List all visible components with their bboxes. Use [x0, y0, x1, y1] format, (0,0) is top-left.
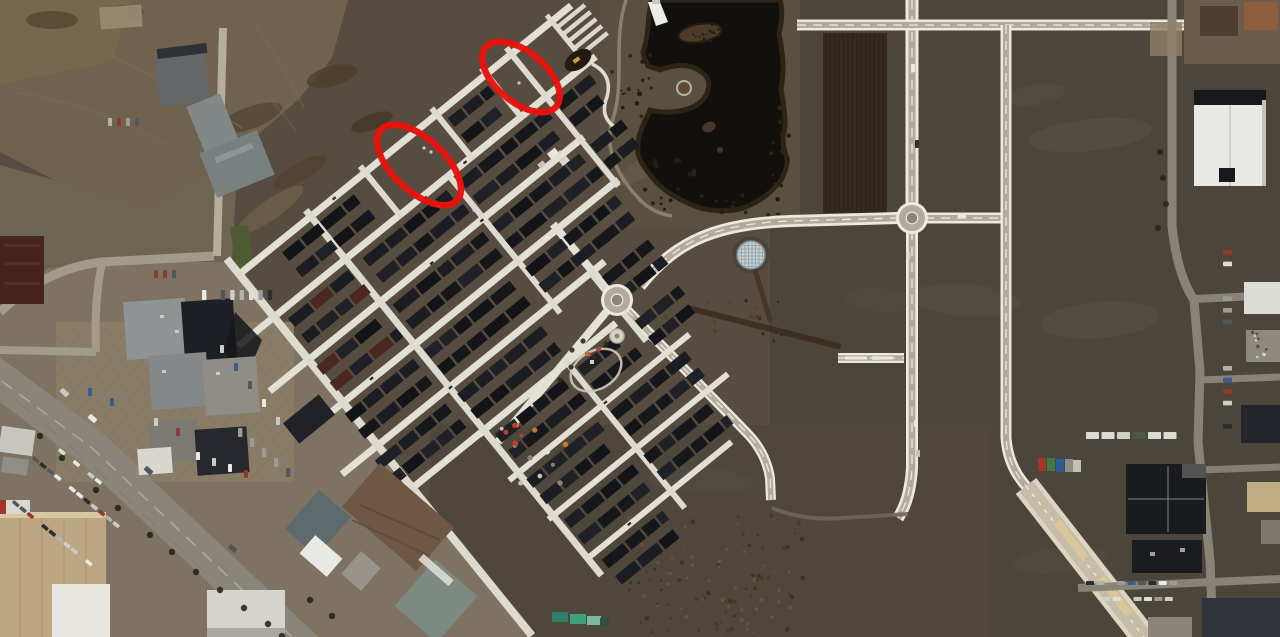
construction-trailer — [587, 616, 601, 625]
car — [914, 420, 918, 427]
8 — [1154, 597, 1162, 601]
building — [1202, 598, 1280, 637]
5 — [220, 345, 224, 353]
4 — [212, 458, 216, 466]
16 — [1223, 424, 1232, 429]
black-roof-building — [1132, 540, 1202, 573]
4 — [244, 470, 248, 478]
6 — [110, 398, 114, 406]
8 — [240, 290, 244, 300]
roundabout-central — [611, 294, 623, 306]
building — [0, 426, 36, 456]
playground — [596, 347, 601, 351]
4 — [228, 464, 232, 472]
construction-trailer — [552, 612, 568, 622]
satellite-image-canvas — [0, 0, 1280, 637]
8 — [1113, 597, 1121, 601]
16 — [1223, 308, 1232, 313]
5 — [234, 363, 238, 371]
6 — [154, 418, 158, 426]
8 — [1102, 597, 1110, 601]
6 — [1133, 432, 1146, 439]
roundabout-east — [906, 212, 918, 224]
car — [911, 64, 915, 72]
16 — [1223, 401, 1232, 406]
3 — [172, 270, 176, 278]
5 — [262, 448, 266, 457]
car — [915, 140, 919, 148]
9 — [1159, 581, 1167, 585]
building — [1246, 330, 1280, 362]
6 — [1164, 432, 1177, 439]
9 — [1148, 581, 1156, 585]
pond-lookout — [677, 81, 691, 95]
16 — [1223, 366, 1232, 371]
6 — [176, 428, 180, 436]
9 — [1086, 581, 1094, 585]
building — [1241, 405, 1280, 443]
dirt-mound — [26, 11, 78, 29]
car — [872, 356, 879, 360]
8 — [202, 290, 206, 300]
hotel-complex — [123, 298, 189, 360]
6 — [1102, 432, 1115, 439]
car — [958, 214, 966, 218]
16 — [1223, 262, 1232, 267]
8 — [1134, 597, 1142, 601]
5 — [276, 417, 280, 425]
5 — [248, 381, 252, 389]
4 — [126, 118, 130, 126]
9 — [1117, 581, 1125, 585]
8 — [1165, 597, 1173, 601]
aerial-map-view — [0, 0, 1280, 637]
car — [916, 450, 920, 457]
8 — [258, 290, 262, 300]
pond-island — [717, 147, 723, 153]
9 — [1128, 581, 1136, 585]
building — [1247, 482, 1280, 512]
6 — [1086, 432, 1099, 439]
3 — [154, 270, 158, 278]
6 — [88, 388, 92, 396]
6 — [1148, 432, 1161, 439]
16 — [1223, 296, 1232, 301]
4 — [117, 118, 121, 126]
shipping-container — [1047, 458, 1055, 471]
shipping-container — [1038, 458, 1046, 471]
plowed-field — [823, 33, 887, 213]
playground — [585, 352, 590, 356]
9 — [1138, 581, 1146, 585]
building — [1244, 282, 1280, 314]
5 — [262, 399, 266, 407]
4 — [108, 118, 112, 126]
16 — [1223, 320, 1232, 325]
5 — [250, 438, 254, 447]
8 — [230, 290, 234, 300]
16 — [1223, 250, 1232, 255]
3 — [163, 270, 167, 278]
gravel-pad — [99, 5, 142, 30]
6 — [1117, 432, 1130, 439]
5 — [274, 458, 278, 467]
8 — [268, 290, 272, 300]
shipping-container — [1073, 460, 1081, 472]
8 — [249, 290, 253, 300]
16 — [1223, 378, 1232, 383]
shipping-container — [1056, 459, 1064, 472]
9 — [1169, 581, 1177, 585]
5 — [238, 428, 242, 437]
9 — [1096, 581, 1104, 585]
16 — [1223, 389, 1232, 394]
construction-trailer — [570, 614, 586, 624]
car — [906, 252, 910, 259]
5 — [286, 468, 290, 477]
4 — [196, 452, 200, 460]
8 — [1144, 597, 1152, 601]
4 — [135, 118, 139, 126]
8 — [221, 290, 225, 300]
shipping-container — [1065, 459, 1073, 472]
